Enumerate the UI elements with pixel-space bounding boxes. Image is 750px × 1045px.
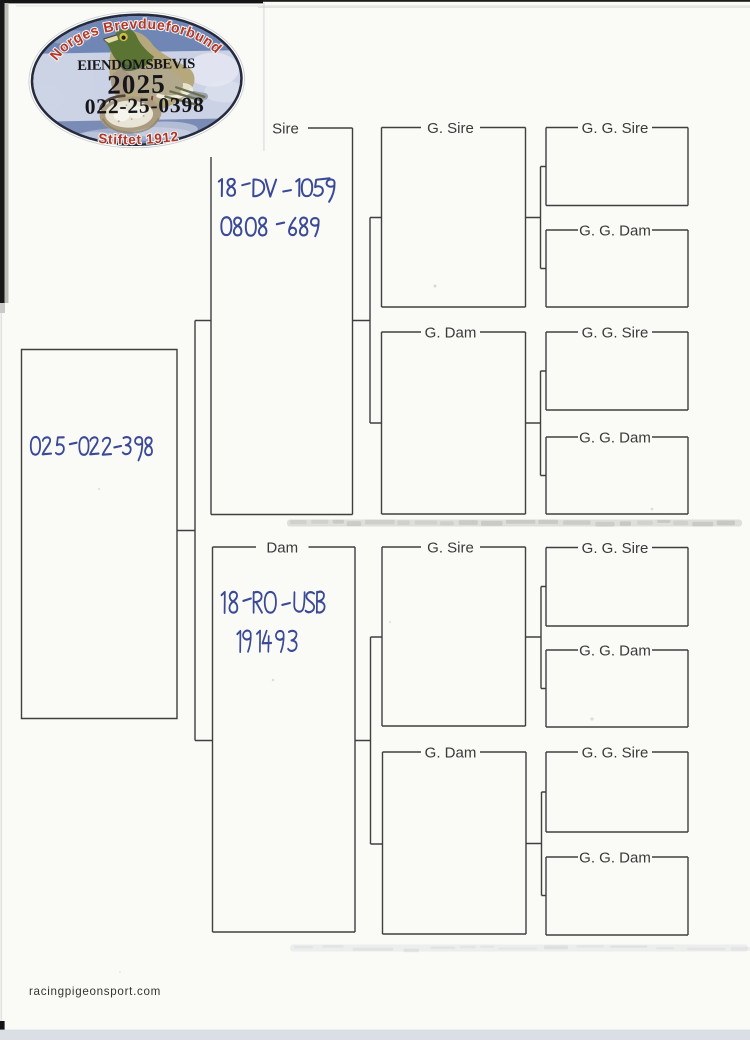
svg-text:G. Dam: G. Dam [425, 744, 477, 761]
svg-text:racingpigeonsport.com: racingpigeonsport.com [29, 985, 161, 998]
svg-text:G. G. Dam: G. G. Dam [579, 642, 651, 659]
svg-text:G. G. Dam: G. G. Dam [579, 849, 651, 866]
svg-text:G. Sire: G. Sire [427, 539, 474, 556]
svg-text:G. G. Dam: G. G. Dam [579, 429, 651, 446]
svg-text:Dam: Dam [266, 539, 298, 556]
svg-text:G. G. Dam: G. G. Dam [579, 222, 651, 239]
svg-text:022-25-0398: 022-25-0398 [85, 93, 205, 119]
svg-text:G. G. Sire: G. G. Sire [582, 120, 649, 137]
svg-text:G. Sire: G. Sire [427, 120, 474, 137]
svg-text:G. G. Sire: G. G. Sire [582, 744, 649, 761]
svg-text:G. Dam: G. Dam [425, 324, 477, 341]
svg-text:Sire: Sire [272, 120, 299, 137]
svg-text:G. G. Sire: G. G. Sire [582, 540, 649, 557]
svg-text:G. G. Sire: G. G. Sire [582, 324, 649, 341]
